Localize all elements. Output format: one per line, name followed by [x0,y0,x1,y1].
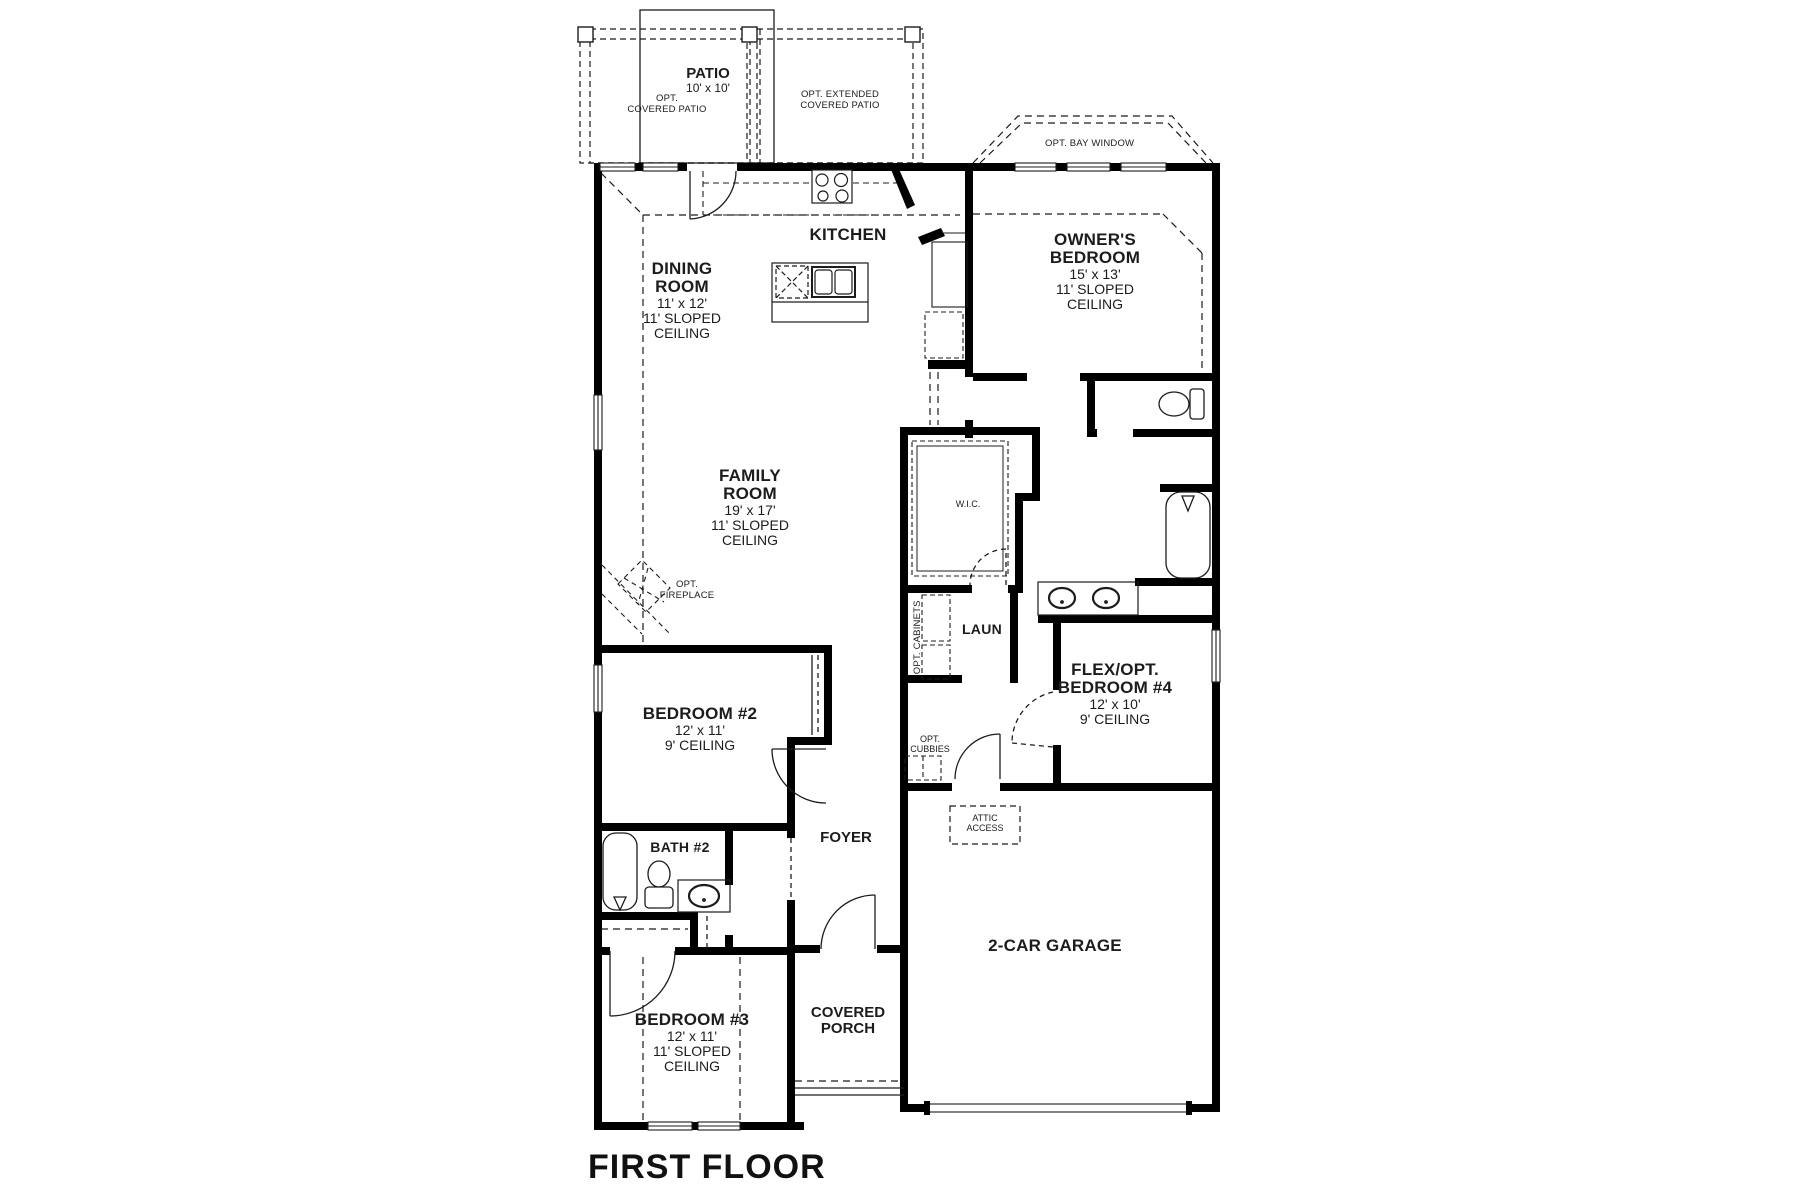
porch-edge [795,1088,904,1095]
dining-window [643,163,678,171]
room-label-patio: PATIO 10' x 10' [658,66,758,95]
owners-bathtub [1166,492,1210,578]
label-opt-cubbies: OPT. CUBBIES [900,734,960,754]
label-opt-cabinets: OPT. CABINETS [913,592,924,682]
kitchen-counter [703,171,897,215]
room-label-laundry: LAUN [952,622,1012,637]
room-label-family: FAMILY ROOM 19' x 17' 11' SLOPED CEILING [702,467,798,548]
page-title: FIRST FLOOR [588,1148,826,1187]
bath2-tub [603,833,637,910]
room-label-bedroom2: BEDROOM #2 12' x 11' 9' CEILING [625,705,775,753]
bedroom4-window [1212,630,1220,682]
bath2-sink [678,880,730,912]
room-label-garage: 2-CAR GARAGE [955,937,1155,955]
owners-toilet [1159,389,1204,419]
bedroom3-window [698,1122,740,1130]
mud-cubbies [905,756,941,780]
label-opt-extended-patio: OPT. EXTENDED COVERED PATIO [775,90,905,111]
room-label-dining: DINING ROOM 11' x 12' 11' SLOPED CEILING [634,260,730,341]
owners-window [1067,163,1110,171]
label-opt-covered-patio: OPT. COVERED PATIO [612,94,722,115]
dining-window [600,163,635,171]
room-label-foyer: FOYER [811,830,881,846]
family-window [594,395,602,450]
refrigerator [932,233,967,307]
room-label-owners-bedroom: OWNER'S BEDROOM 15' x 13' 11' SLOPED CEI… [1045,231,1145,312]
bath2-toilet [645,861,673,908]
room-label-bedroom3: BEDROOM #3 12' x 11' 11' SLOPED CEILING [634,1011,750,1074]
label-opt-fireplace: OPT. FIREPLACE [652,580,722,601]
cooktop [812,170,852,203]
island-sink [812,267,855,297]
room-label-porch: COVERED PORCH [808,1005,888,1037]
washer-dryer-cabinets [922,595,950,679]
dishwasher [776,266,808,298]
room-label-bath2: BATH #2 [645,840,715,855]
garage-door-opening [924,1101,1192,1115]
bedroom2-door [772,749,826,803]
owners-window [1015,163,1056,171]
patio-door [690,171,736,219]
room-label-kitchen: KITCHEN [778,226,918,244]
owners-window [1121,163,1166,171]
kitchen-island [772,263,868,322]
room-label-wic: W.I.C. [938,499,998,509]
label-opt-bay-window: OPT. BAY WINDOW [1045,139,1145,150]
bedroom2-window [594,665,602,712]
bedroom3-window [648,1122,692,1130]
bedroom4-door [1012,692,1053,747]
floor-plan-page: PATIO 10' x 10' OPT. COVERED PATIO OPT. … [0,0,1800,1200]
room-label-bedroom4: FLEX/OPT. BEDROOM #4 12' x 10' 9' CEILIN… [1053,661,1177,727]
floor-plan-drawing [0,0,1800,1200]
label-attic-access: ATTIC ACCESS [950,813,1020,833]
owners-double-vanity [1038,582,1138,615]
front-door [821,895,875,949]
bedroom2-closet-door [812,655,818,735]
wic-door [970,549,1006,585]
pantry [925,312,963,358]
garage-entry-door [955,734,1000,779]
